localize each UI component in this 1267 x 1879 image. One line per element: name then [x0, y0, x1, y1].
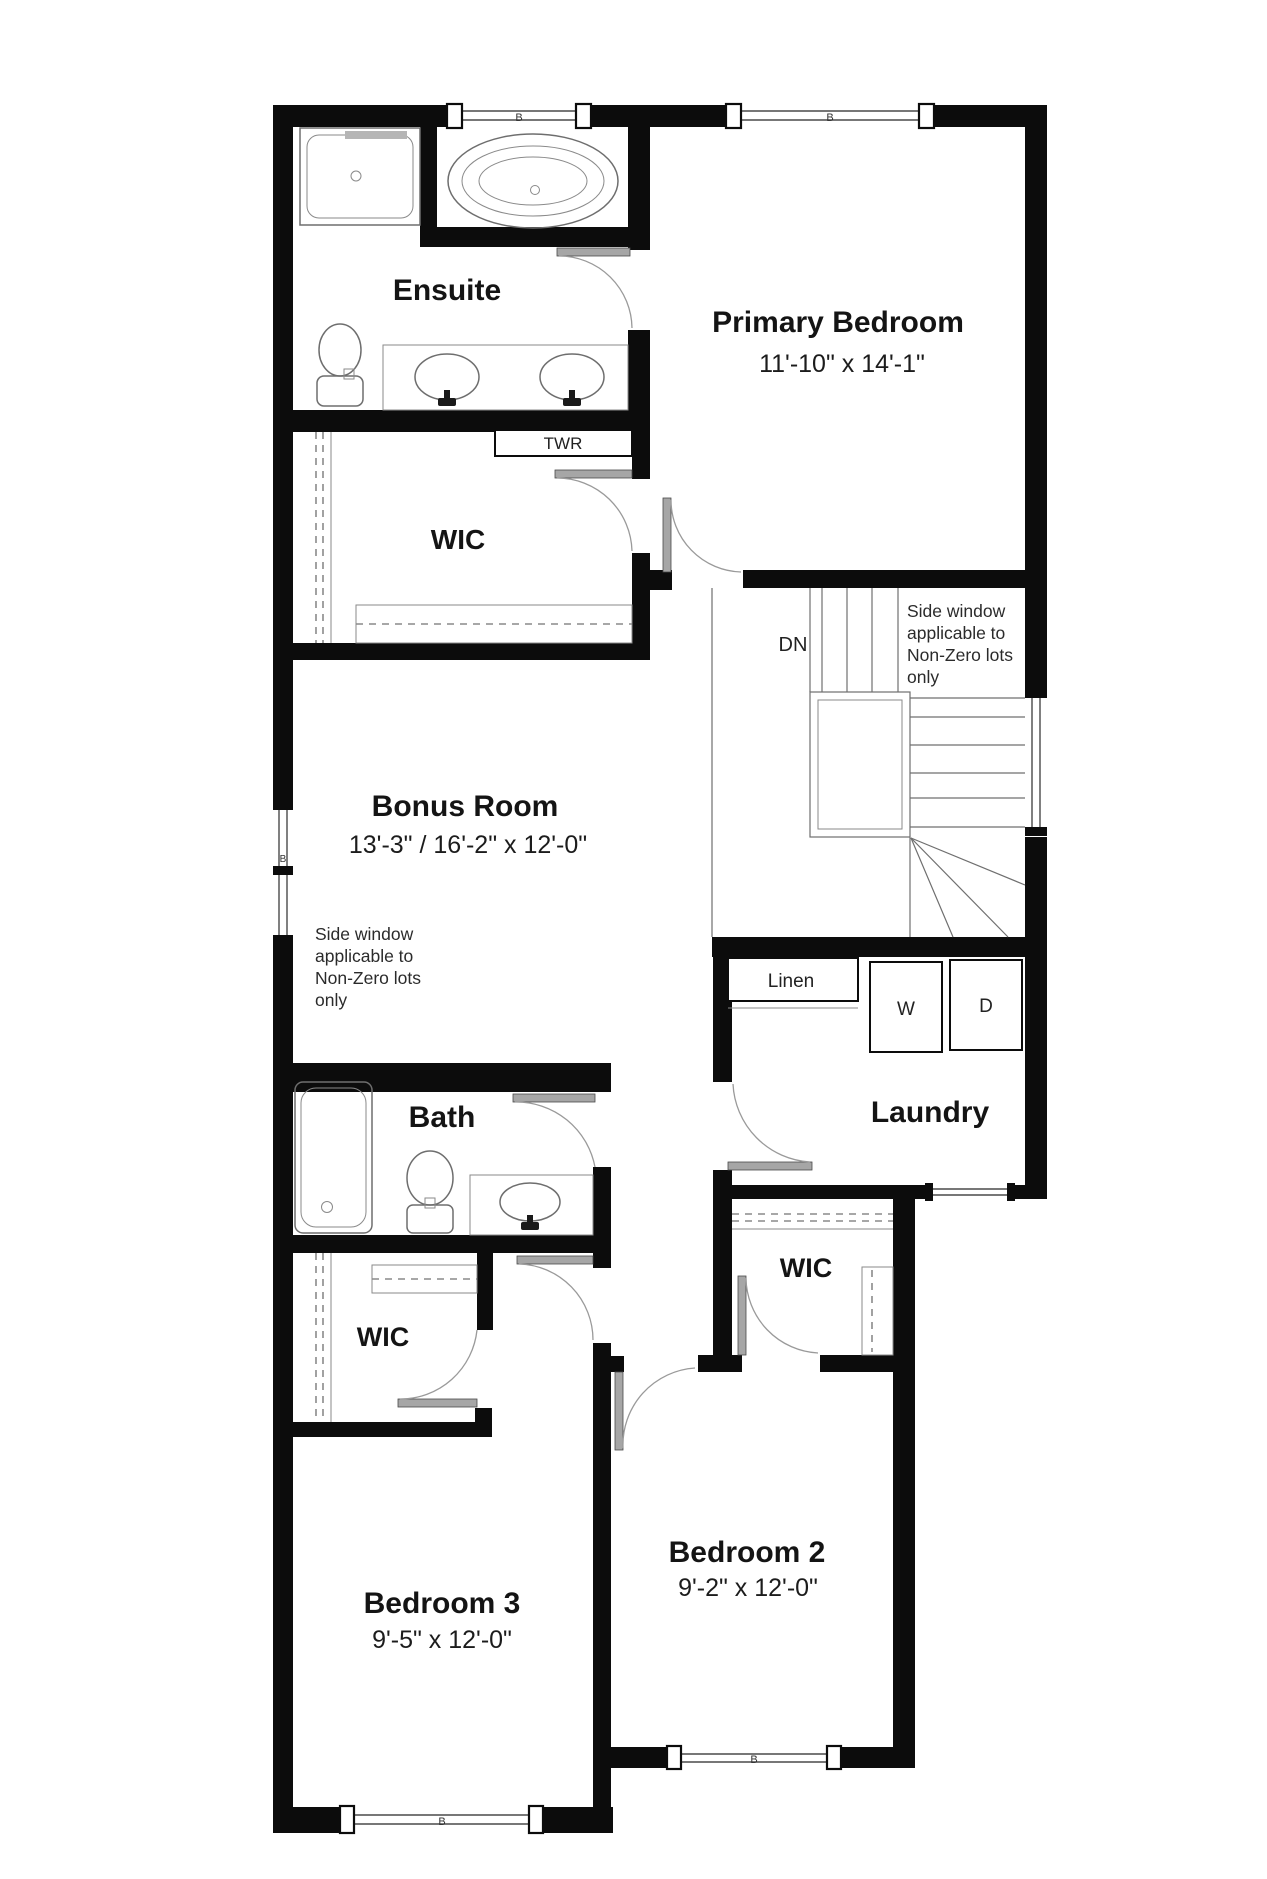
window-tag: B	[438, 1816, 445, 1828]
toilet-icon	[407, 1151, 453, 1233]
right-exterior-wall-lower	[1025, 837, 1047, 1199]
bedroom2-door	[615, 1368, 695, 1450]
top-wall-middle-segment	[583, 105, 733, 127]
primary-bedroom-dimensions: 11'-10" x 14'-1"	[759, 350, 925, 378]
tub-niche-bottom-wall	[420, 227, 628, 247]
wic-primary-room: TWR WIC	[316, 430, 632, 643]
washer-label: W	[897, 999, 915, 1020]
bedroom2-door-frame-block	[608, 1356, 624, 1372]
wic-bedroom3-room: WIC	[316, 1253, 477, 1422]
linen-label: Linen	[768, 971, 815, 992]
hall-divider-middle	[593, 1167, 611, 1268]
primary-bedroom-room: Primary Bedroom 11'-10" x 14'-1"	[712, 306, 964, 378]
ensuite-primary-divider-upper	[628, 127, 650, 250]
ensuite-bottom-wall	[273, 410, 650, 432]
svg-text:only: only	[315, 990, 347, 1010]
double-vanity-icon	[383, 345, 628, 410]
wic-bedroom2-room: WIC	[732, 1214, 893, 1355]
towel-cabinet-label: TWR	[544, 434, 583, 453]
right-exterior-wall-upper	[1025, 105, 1047, 698]
window-tag: B	[750, 1754, 757, 1766]
stair-winder-tread	[911, 838, 1008, 937]
laundry-left-wall-lower	[713, 1170, 732, 1355]
landing-door-jamb	[650, 570, 672, 590]
wic-bedroom3-right-wall	[477, 1253, 493, 1330]
wic-bedroom3-label: WIC	[357, 1322, 409, 1352]
wic-bedroom2-door	[738, 1276, 818, 1355]
bedroom2-label: Bedroom 2	[669, 1536, 826, 1569]
primary-bedroom-label: Primary Bedroom	[712, 306, 964, 339]
svg-text:Non-Zero lots: Non-Zero lots	[315, 968, 421, 988]
stairwell-top-wall	[743, 570, 1047, 588]
side-window-note-right: Side window applicable to Non-Zero lots …	[907, 601, 1013, 687]
svg-text:applicable to: applicable to	[315, 946, 413, 966]
dryer-label: D	[979, 996, 993, 1017]
stairwell-bottom-wall	[712, 937, 1047, 957]
bathtub-icon	[295, 1082, 372, 1233]
ensuite-door	[557, 248, 632, 328]
bonus-room-side-window: B	[273, 810, 293, 935]
window-tag: B	[515, 112, 522, 124]
top-wall-left-segment	[273, 105, 455, 127]
wic-primary-label: WIC	[431, 524, 485, 555]
bedroom3-dimensions: 9'-5" x 12'-0"	[372, 1626, 512, 1654]
wic-bedroom2-label: WIC	[780, 1253, 832, 1283]
bath-label: Bath	[409, 1101, 476, 1134]
bedroom3-label: Bedroom 3	[364, 1587, 521, 1620]
bedroom2-room: Bedroom 2 9'-2" x 12'-0"	[669, 1536, 826, 1602]
bedroom3-door	[517, 1256, 593, 1340]
wic-bedroom2-bottom-wall-left	[698, 1355, 742, 1372]
left-exterior-wall	[273, 105, 293, 1833]
floor-plan-drawing: B B B	[0, 0, 1267, 1879]
wic-primary-right-wall-upper	[632, 432, 650, 479]
bedroom-divider-wall	[593, 1343, 611, 1833]
bonus-room-dimensions: 13'-3" / 16'-2" x 12'-0"	[349, 831, 587, 859]
bath-bottom-wall	[273, 1235, 607, 1253]
bonus-room: Bonus Room 13'-3" / 16'-2" x 12'-0" Side…	[315, 790, 587, 1010]
svg-text:applicable to: applicable to	[907, 623, 1005, 643]
window-tag: B	[826, 112, 833, 124]
bedroom3-room: Bedroom 3 9'-5" x 12'-0"	[364, 1587, 521, 1654]
closet-shelf	[862, 1267, 893, 1355]
laundry-door	[728, 1084, 812, 1170]
bedroom2-dimensions: 9'-2" x 12'-0"	[678, 1574, 818, 1602]
bedroom3-window: B	[340, 1806, 543, 1833]
ensuite-label: Ensuite	[393, 274, 501, 307]
wic-primary-door	[555, 470, 632, 551]
ensuite-primary-divider-lower	[628, 330, 650, 410]
laundry-room: Linen W D Laundry	[728, 958, 1022, 1129]
stair-open-well	[810, 692, 910, 837]
bonus-room-label: Bonus Room	[372, 790, 559, 823]
ensuite-room: Ensuite	[300, 128, 628, 410]
bedroom3-top-wall-corner-block	[475, 1408, 492, 1437]
bath-room: Bath	[295, 1082, 593, 1235]
primary-bedroom-top-window: B	[726, 104, 934, 128]
bath-door	[513, 1094, 595, 1167]
bedroom2-east-wall	[893, 1199, 915, 1768]
shower-tub-stub-wall	[420, 127, 437, 237]
svg-text:only: only	[907, 667, 939, 687]
window-tag: B	[280, 854, 287, 865]
shower-icon	[300, 128, 420, 225]
bathtub-icon	[448, 134, 618, 228]
stair-well-railing	[818, 700, 902, 829]
wic-bedroom3-door	[398, 1330, 477, 1407]
toilet-icon	[317, 324, 363, 406]
vanity-icon	[470, 1175, 593, 1235]
bedroom2-window: B	[667, 1746, 841, 1769]
wic-bedroom2-bottom-wall-right	[820, 1355, 893, 1372]
laundry-window	[925, 1183, 1015, 1201]
svg-text:Side window: Side window	[315, 924, 414, 944]
hall-divider-top-block	[593, 1063, 611, 1092]
side-window-note-left: Side window applicable to Non-Zero lots …	[315, 924, 421, 1010]
laundry-label: Laundry	[871, 1096, 990, 1129]
svg-text:Non-Zero lots: Non-Zero lots	[907, 645, 1013, 665]
ensuite-top-window: B	[447, 104, 591, 128]
wic-primary-bottom-wall	[293, 643, 647, 660]
svg-text:Side window: Side window	[907, 601, 1006, 621]
primary-suite-landing-door	[663, 498, 741, 572]
bedroom3-top-wall	[292, 1422, 492, 1437]
stairs-down-label: DN	[779, 634, 808, 656]
stair-side-window	[1025, 689, 1047, 836]
floor-plan-page: B B B	[0, 0, 1267, 1879]
